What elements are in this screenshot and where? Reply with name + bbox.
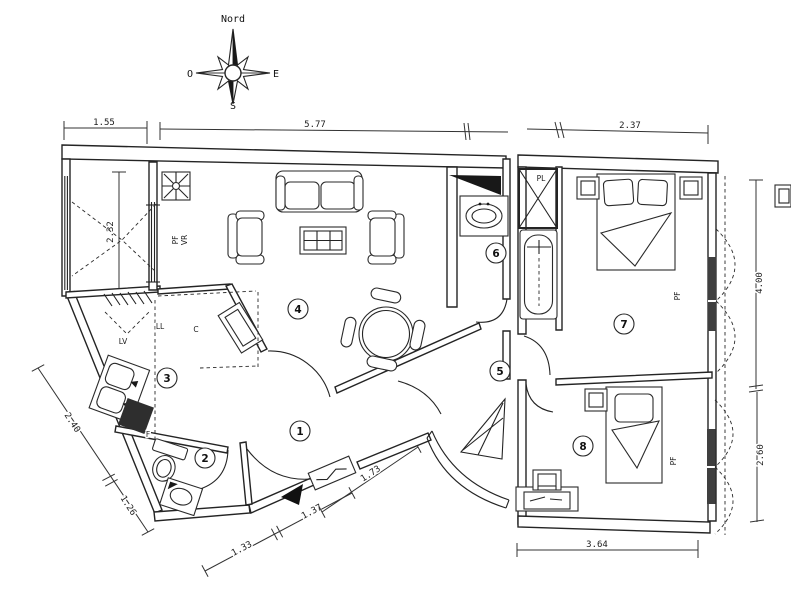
label-window-vr: VR <box>180 235 189 245</box>
wall-bedroom-divider <box>556 372 712 385</box>
floor-plan-drawing: Nord O E S 1.55 5.77 2.37 2.32 2.40 1.26 <box>0 0 791 600</box>
bedroom8-furniture: PF <box>516 387 678 511</box>
desk-chair <box>533 470 561 490</box>
sofa <box>276 171 363 212</box>
loggia-window-detail: PF VR <box>72 202 189 276</box>
armchair-right <box>368 211 404 264</box>
casement-arc-8a <box>715 400 733 467</box>
svg-text:4: 4 <box>294 304 301 316</box>
bathtub <box>520 230 557 319</box>
nightstand-left <box>577 177 599 199</box>
room-label-6: 6 <box>486 243 506 263</box>
corridor-element <box>461 399 505 459</box>
label-fridge: F <box>146 430 150 439</box>
compass-west-label: O <box>187 69 193 80</box>
dim-top-left: 1.55 <box>93 118 115 128</box>
label-dishwasher: LV <box>119 337 128 346</box>
dim-bedroom7-height: 4.00 <box>755 272 765 294</box>
wall-loggia-window <box>149 162 157 290</box>
svg-text:8: 8 <box>579 441 586 453</box>
room-label-8: 8 <box>573 436 593 456</box>
toilet <box>144 438 188 486</box>
room-label-7: 7 <box>614 314 634 334</box>
svg-text:1: 1 <box>296 426 303 438</box>
washbasin <box>460 196 508 236</box>
door-bathroom <box>476 299 507 322</box>
bedroom7-furniture: PF <box>577 174 702 300</box>
room-label-2: 2 <box>195 448 215 468</box>
dim-kitchen-a: 2.40 <box>62 411 82 435</box>
coffee-table <box>300 227 346 254</box>
room-label-5: 5 <box>490 361 510 381</box>
door-living-hall <box>268 351 330 397</box>
wall-entry-a <box>249 478 314 513</box>
window-bedroom7 <box>708 257 717 331</box>
compass-east-label: E <box>273 69 279 80</box>
edge-cabinet-partial <box>775 185 791 207</box>
wall-right-unit-bottom <box>518 516 710 533</box>
wc-basin <box>160 478 203 516</box>
dim-entry-b: 1.37 <box>300 503 324 522</box>
dining-chair-top <box>370 287 402 304</box>
dim-loggia-depth: 2.32 <box>106 221 116 243</box>
label-bedroom7-window: PF <box>673 292 682 301</box>
compass-north-label: Nord <box>221 14 245 25</box>
dim-entry-a: 1.33 <box>230 540 254 559</box>
svg-text:7: 7 <box>620 319 627 331</box>
wall-left-exterior <box>62 159 70 296</box>
svg-text:6: 6 <box>492 248 499 260</box>
dining-chair-left <box>340 316 357 348</box>
door-entrance-leaf <box>308 456 356 490</box>
nightstand-8 <box>585 389 607 411</box>
label-closet: PL <box>537 174 547 183</box>
room-label-4: 4 <box>288 299 308 319</box>
label-washing-machine: LL <box>156 322 165 331</box>
plant <box>162 172 190 200</box>
svg-text:2: 2 <box>201 453 208 465</box>
pillow-left <box>603 179 634 206</box>
svg-text:5: 5 <box>496 366 503 378</box>
wall-top-right-unit <box>518 155 718 173</box>
door-bedroom8 <box>526 384 553 412</box>
door-entrance-swing <box>247 449 311 479</box>
wall-living-right <box>447 167 457 307</box>
nightstand-right <box>680 177 702 199</box>
svg-text:3: 3 <box>163 373 170 385</box>
compass-rose: Nord O E S <box>187 14 279 112</box>
room-label-1: 1 <box>290 421 310 441</box>
label-bedroom8-window: PF <box>669 457 678 466</box>
dim-bedroom8-height: 2.60 <box>756 444 766 466</box>
dim-kitchen-b: 1.26 <box>118 494 138 518</box>
door-corridor <box>398 381 441 414</box>
room-label-3: 3 <box>157 368 177 388</box>
dim-bottom-width: 3.64 <box>586 540 608 550</box>
armchair-left <box>228 211 264 264</box>
casement-arc-7a <box>716 229 735 301</box>
compass-south-label: S <box>230 101 236 112</box>
dining-table <box>359 307 413 361</box>
pillow-right <box>637 179 667 205</box>
dim-top-right: 2.37 <box>619 121 641 131</box>
door-bedroom7 <box>524 336 550 375</box>
casement-arc-7b <box>716 301 735 373</box>
compass-star-shade <box>233 29 238 66</box>
wall-curved-outer <box>427 438 506 508</box>
wall-top-left-unit <box>62 145 506 168</box>
wall-loggia-bottom <box>66 286 160 298</box>
dim-top-center: 5.77 <box>304 120 326 130</box>
casement-arc-8b <box>715 467 733 534</box>
wall-wc-right <box>240 442 252 505</box>
label-cooker: C <box>193 325 198 334</box>
pillow <box>615 394 653 422</box>
label-window-pf: PF <box>171 236 180 245</box>
floor-plan-page: Nord O E S 1.55 5.77 2.37 2.32 2.40 1.26 <box>0 0 791 600</box>
desk <box>516 487 578 511</box>
compass-hub <box>225 65 241 81</box>
